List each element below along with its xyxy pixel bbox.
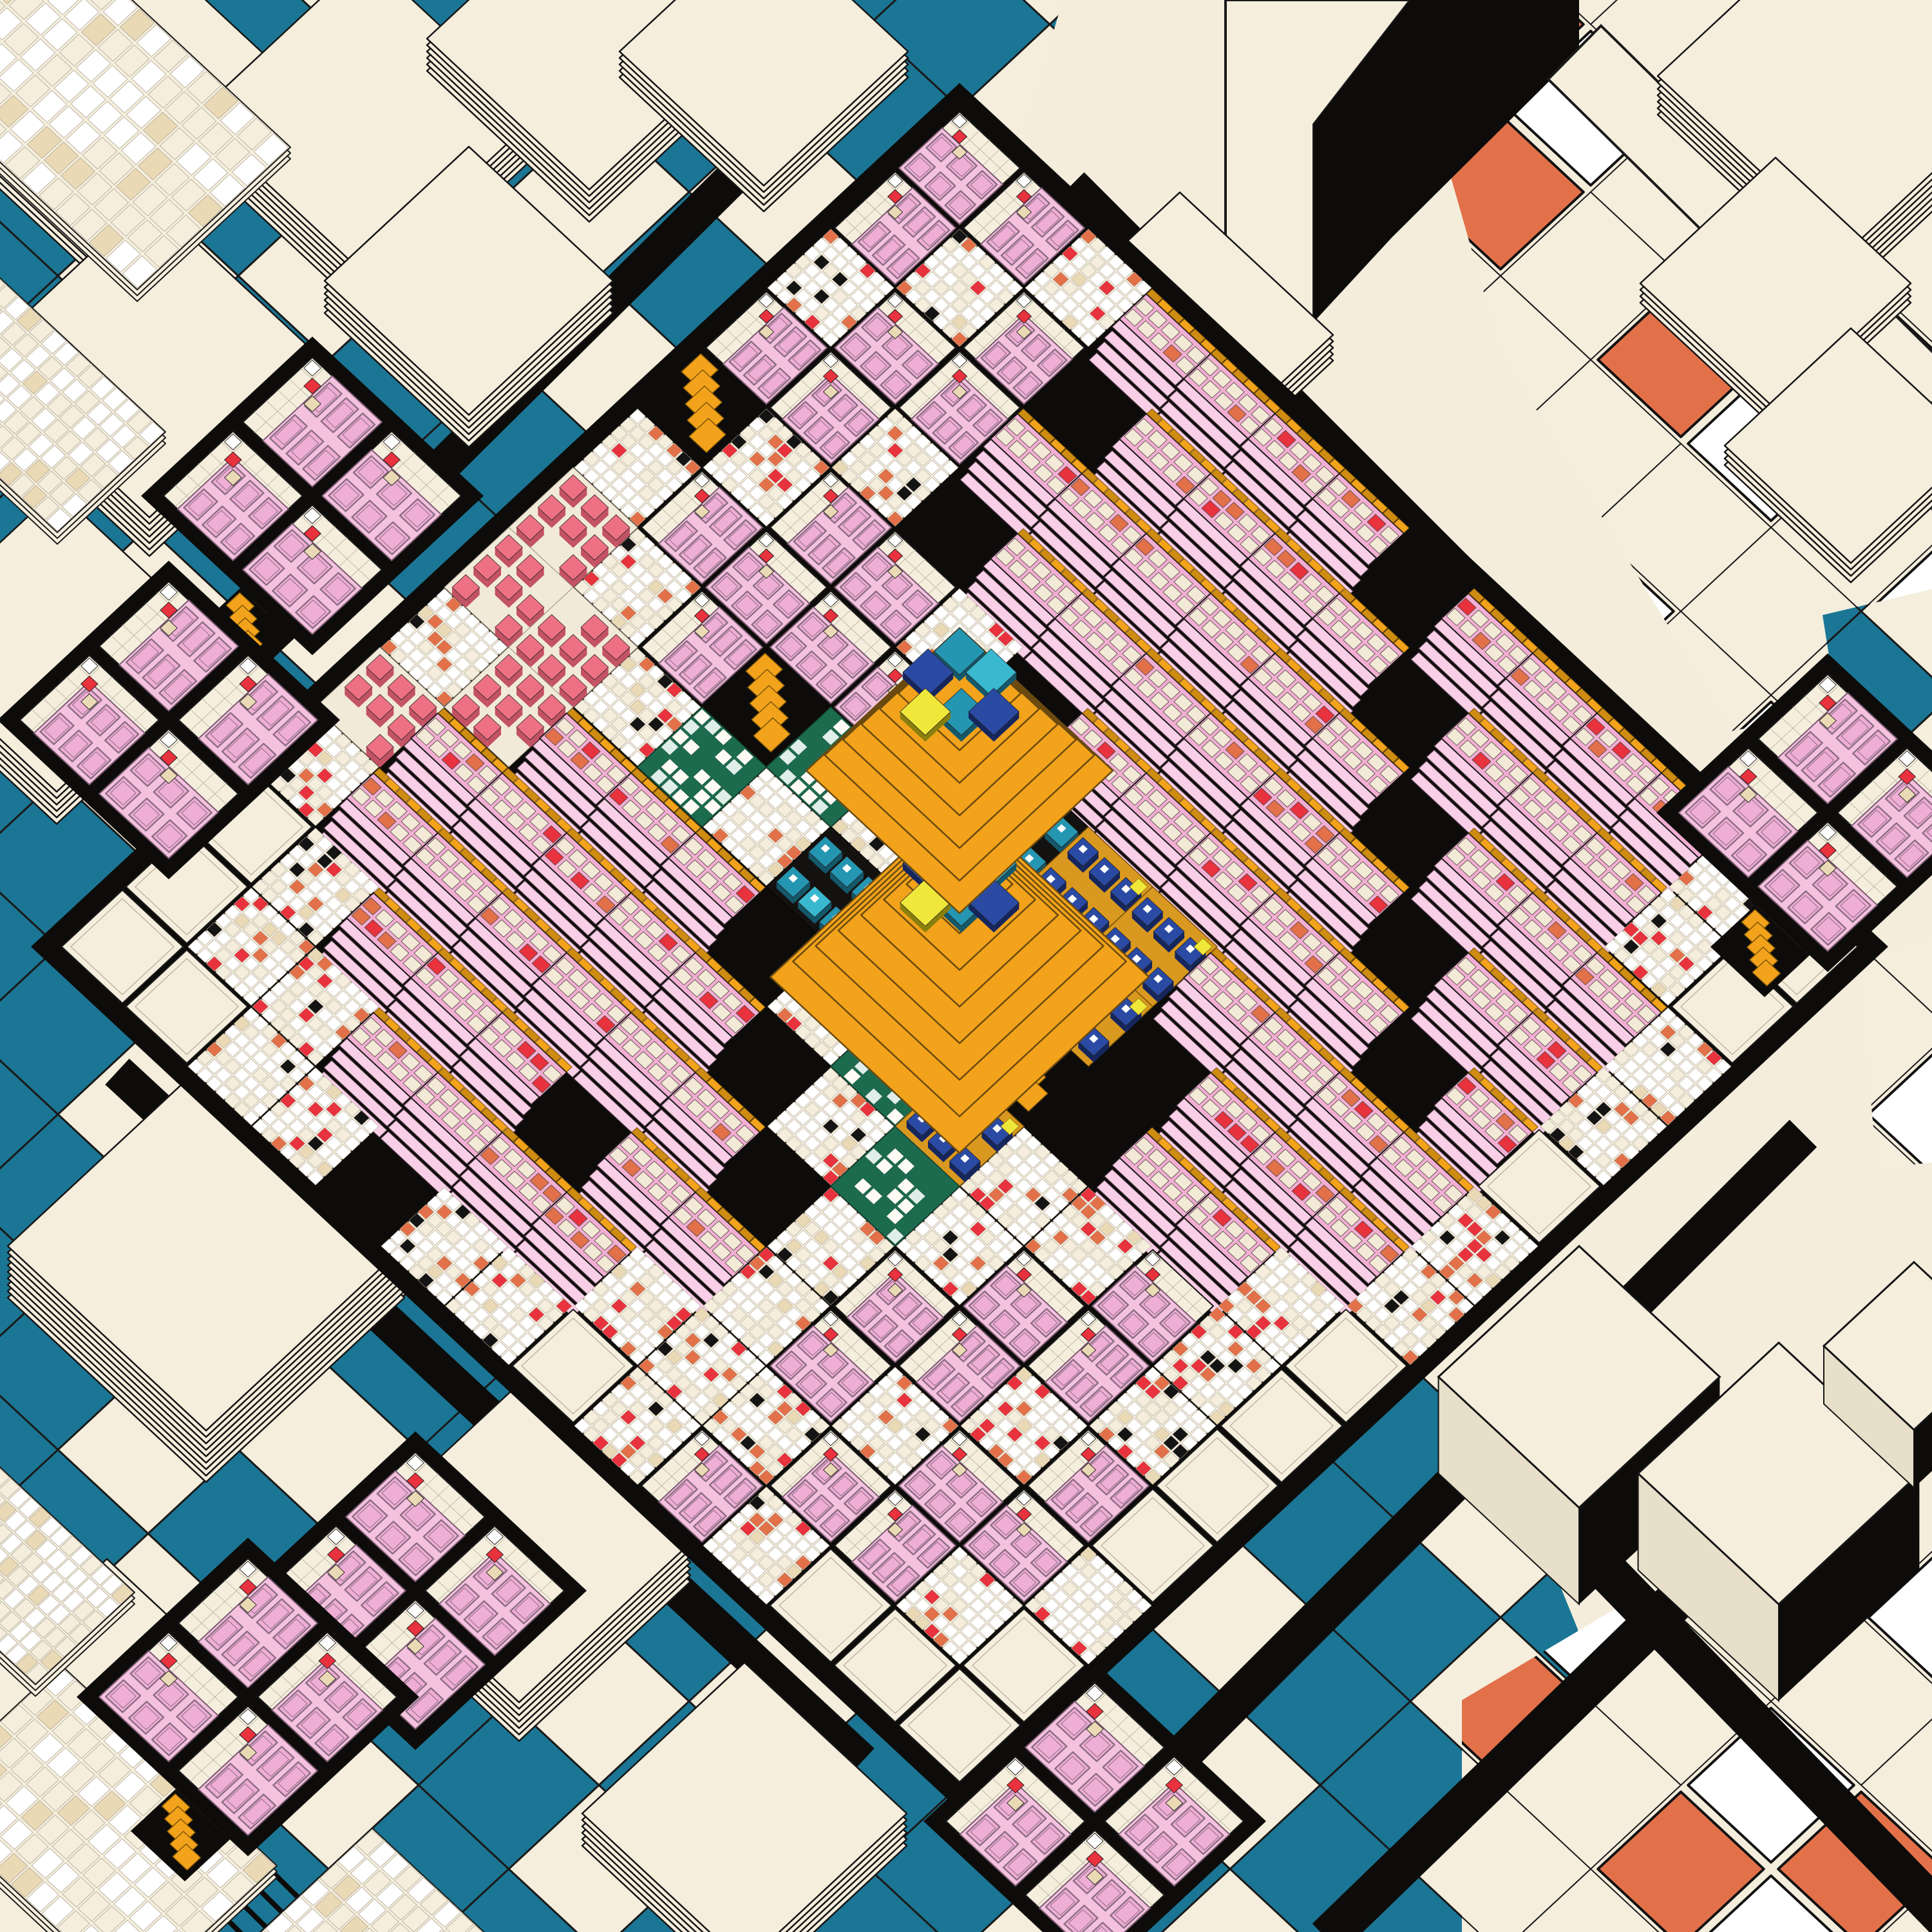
artwork-canvas bbox=[0, 0, 1932, 1932]
isometric-city-artwork bbox=[0, 0, 1932, 1932]
